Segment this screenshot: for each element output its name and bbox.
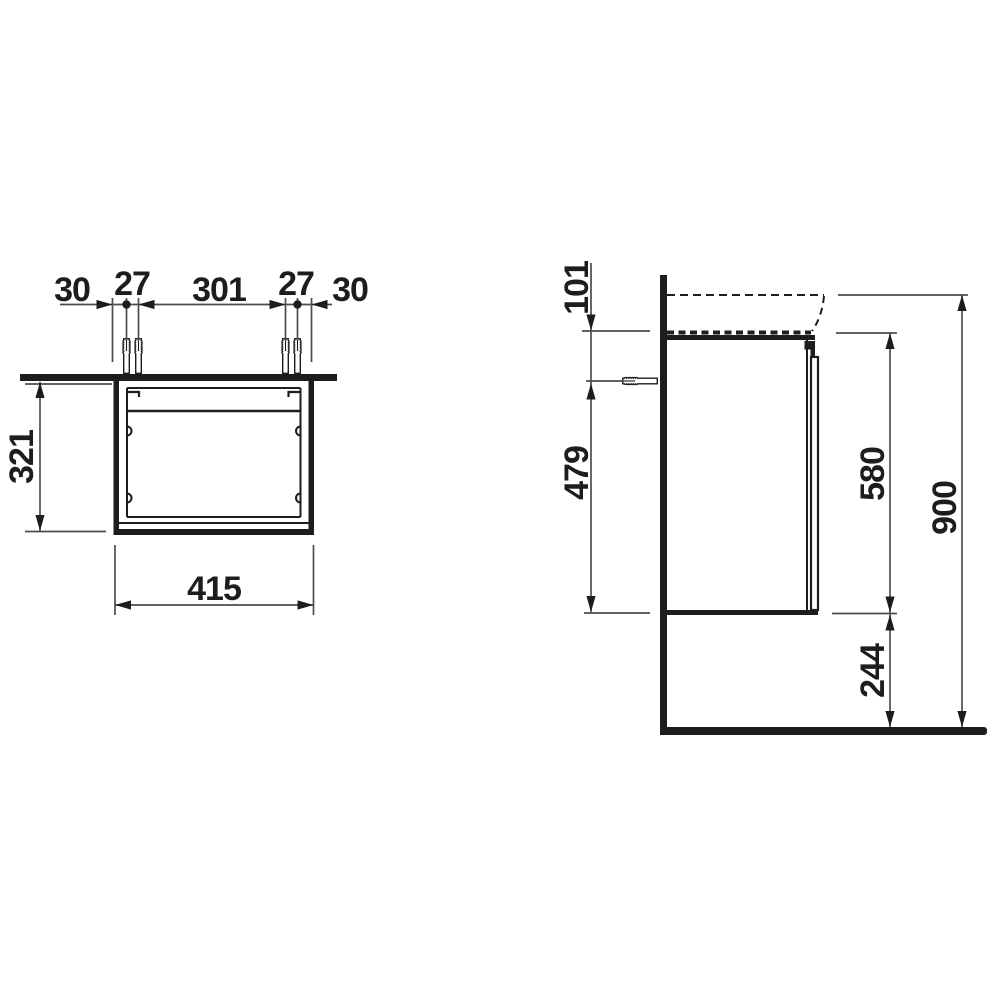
arrowhead — [957, 711, 966, 727]
arrowhead — [97, 300, 113, 309]
hinge-bracket-right — [289, 392, 301, 397]
wall-plug-icon — [623, 377, 658, 384]
front-mounting-plate — [20, 374, 337, 381]
front-cabinet-body — [114, 381, 315, 535]
dim-label-244: 244 — [854, 643, 892, 698]
wall-plug-icon — [123, 339, 130, 374]
arrowhead — [885, 597, 894, 613]
dim-label-479: 479 — [558, 446, 596, 500]
wall-plug-icon — [294, 339, 301, 374]
front-view: 30 27 301 27 30 321 415 — [3, 265, 368, 615]
washbasin-dashed-outline — [667, 295, 824, 333]
wall-line — [660, 275, 667, 735]
arrowhead — [885, 333, 894, 349]
dim-label-101: 101 — [558, 261, 596, 315]
dim-label-415: 415 — [187, 570, 241, 608]
dim-label-580: 580 — [854, 447, 892, 501]
dim-label-321: 321 — [3, 430, 41, 484]
dim-label-900: 900 — [926, 481, 964, 535]
technical-drawing-page: 30 27 301 27 30 321 415 — [0, 0, 1000, 1000]
cabinet-top-panel — [667, 335, 815, 340]
front-height-dimension: 321 — [3, 382, 112, 532]
basin-front-dashed — [812, 296, 824, 331]
dim-label-301: 301 — [192, 271, 246, 309]
arrowhead — [885, 615, 894, 631]
side-view: 101 479 580 244 900 — [558, 261, 987, 735]
arrowhead — [586, 596, 595, 612]
arrowhead — [35, 515, 44, 531]
side-middle-dimensions: 580 244 — [832, 333, 897, 727]
cabinet-right-wall — [309, 381, 315, 535]
arrowhead — [298, 600, 314, 609]
front-width-dimension: 415 — [115, 545, 314, 615]
hinge-bracket-left — [127, 392, 139, 397]
floor-line — [660, 727, 987, 735]
door-panel — [811, 357, 818, 610]
dim-label-30-left: 30 — [54, 271, 90, 309]
dim-label-27-right: 27 — [278, 265, 314, 303]
side-cabinet-body — [667, 335, 818, 615]
side-left-dimensions: 101 479 — [558, 261, 650, 613]
arrowhead — [586, 315, 595, 331]
wall-plug-icon — [282, 339, 289, 374]
arrowhead — [885, 711, 894, 727]
arrowhead — [115, 600, 131, 609]
arrowhead — [586, 384, 595, 400]
cabinet-left-wall — [114, 381, 120, 535]
wall-plug-icon — [135, 339, 142, 374]
front-top-dimension-chain: 30 27 301 27 30 — [54, 265, 368, 362]
vanity-dimension-drawing: 30 27 301 27 30 321 415 — [0, 0, 1000, 1000]
cabinet-bottom-edge — [114, 529, 315, 535]
dim-label-27-left: 27 — [114, 265, 150, 303]
cabinet-bottom-panel — [667, 610, 818, 615]
arrowhead — [957, 295, 966, 311]
dim-label-30-right: 30 — [332, 271, 368, 309]
